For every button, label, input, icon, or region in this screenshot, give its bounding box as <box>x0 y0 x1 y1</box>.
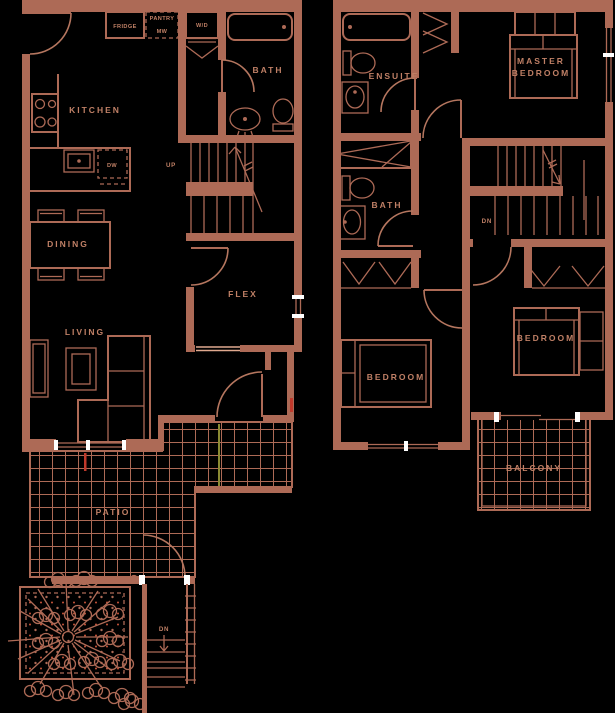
microwave-label: MW <box>157 29 168 35</box>
kitchen-label: KITCHEN <box>69 105 121 115</box>
floor-plan-drawing: FRIDGE PANTRY MW W/D BATH <box>0 0 615 713</box>
floorplan-page: FRIDGE PANTRY MW W/D BATH <box>0 0 615 713</box>
kitchen-appliances: FRIDGE PANTRY MW W/D <box>106 12 218 58</box>
living-south-window <box>56 443 126 447</box>
floor1-stairs: UP <box>166 143 262 233</box>
ensuite-bathtub <box>343 14 410 40</box>
ensuite-door-arc <box>381 78 415 112</box>
patio-label: PATIO <box>96 507 131 517</box>
floor2-stairs: DN <box>470 146 598 235</box>
master-east-window <box>607 28 612 102</box>
living-label: LIVING <box>65 327 105 337</box>
entry-door <box>30 13 71 54</box>
landscaping <box>8 572 146 710</box>
floor2-plan: ENSUITE MASTER BEDROOM <box>333 0 614 510</box>
dishwasher-label: DW <box>107 163 117 169</box>
up-label: UP <box>166 162 176 169</box>
ensuite: ENSUITE <box>342 14 419 113</box>
floor1-bath: BATH <box>222 14 293 141</box>
wall-marker <box>290 398 293 412</box>
master-bedroom-label-line1: MASTER <box>517 56 565 66</box>
bath2-label: BATH <box>372 200 403 210</box>
fridge-label: FRIDGE <box>113 24 137 30</box>
dn-label-floor1: DN <box>159 626 169 633</box>
balcony: BALCONY <box>478 412 590 510</box>
bedroom-right-door-arc <box>473 247 511 285</box>
bedroom-right: BEDROOM <box>473 247 605 375</box>
bedroom-left-door-arc <box>424 290 462 328</box>
bedroom-left: BEDROOM <box>341 262 462 451</box>
floor2-walls <box>333 0 613 450</box>
ensuite-label: ENSUITE <box>369 71 420 81</box>
master-door-arc <box>423 100 461 138</box>
entry-hall <box>217 372 293 417</box>
dining-set: DINING <box>30 210 110 280</box>
floor1-plan: FRIDGE PANTRY MW W/D BATH <box>8 0 304 713</box>
toilet <box>273 99 293 131</box>
bath2-sink <box>340 206 365 239</box>
floor1-kitchen: KITCHEN DW <box>30 74 130 191</box>
bath1-door-arc <box>222 60 254 92</box>
floor2-bath: BATH <box>335 140 413 246</box>
stove <box>32 94 58 132</box>
patio-tiles <box>30 422 292 577</box>
flex-east-window <box>296 298 301 316</box>
balcony-label: BALCONY <box>506 463 562 473</box>
flex-south-window <box>196 347 240 351</box>
living-room: LIVING <box>30 327 150 450</box>
closet-doors <box>528 266 604 286</box>
master-bedroom-label-line2: BEDROOM <box>512 68 570 78</box>
washer-dryer-label: W/D <box>196 23 208 29</box>
closet-doors <box>343 262 411 284</box>
bedroom-left-window <box>368 445 438 449</box>
flex-door-arc <box>191 248 228 285</box>
hall-closet <box>423 13 447 53</box>
bedroom-right-label: BEDROOM <box>517 333 575 343</box>
bath2-door-arc <box>378 211 413 246</box>
bath1-label: BATH <box>253 65 284 75</box>
closet-bifold-doors <box>423 13 447 53</box>
bedroom-left-label: BEDROOM <box>367 372 425 382</box>
floor1-flex: FLEX <box>191 248 304 351</box>
gate-post <box>184 575 190 585</box>
pantry-label: PANTRY <box>150 16 175 22</box>
sofa <box>78 336 150 442</box>
down-arrow <box>160 635 168 651</box>
sliding-door <box>501 416 576 420</box>
washer-dryer-bifold-door <box>186 46 218 58</box>
flex-label: FLEX <box>228 289 258 299</box>
master-closet <box>515 12 575 35</box>
master-bed <box>510 35 577 98</box>
dn-label-floor2: DN <box>482 218 492 225</box>
shower <box>335 140 411 168</box>
patio-door-arc <box>217 372 262 417</box>
bath2-toilet <box>342 176 374 200</box>
dishwasher: DW <box>98 150 127 184</box>
kitchen-sink <box>64 150 94 172</box>
dining-label: DINING <box>47 239 89 249</box>
dresser <box>580 312 603 370</box>
ensuite-sink <box>342 82 368 113</box>
gate-post <box>139 575 145 585</box>
walkway-steps: DN <box>142 584 196 713</box>
